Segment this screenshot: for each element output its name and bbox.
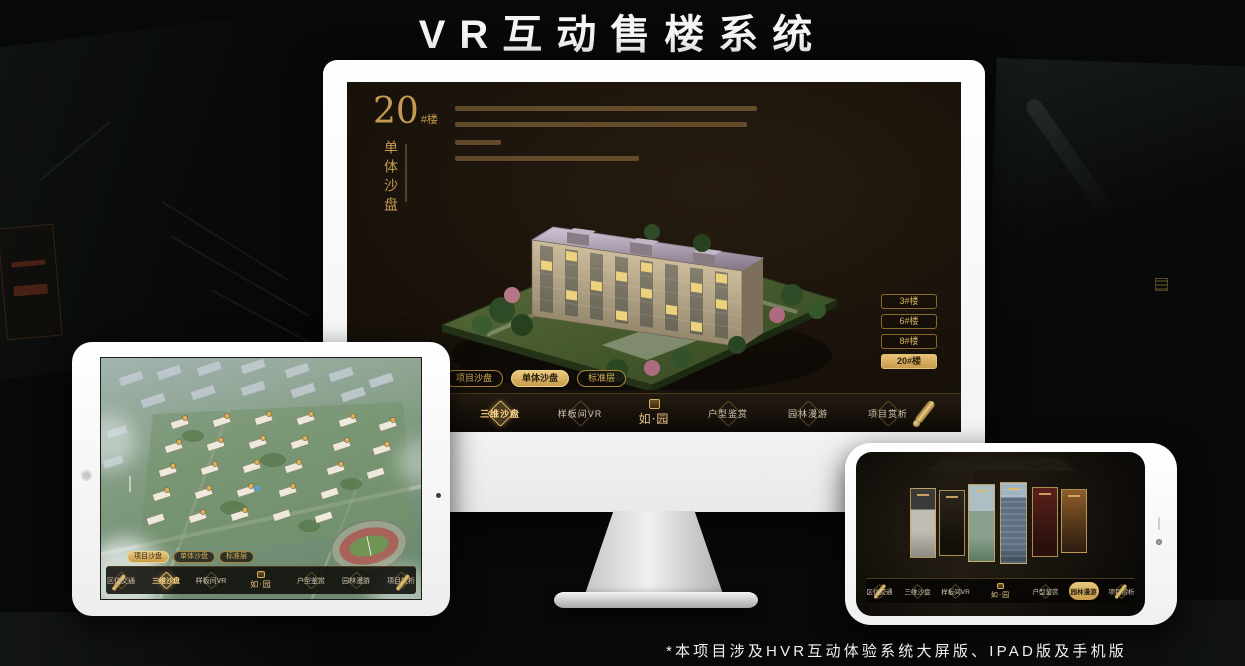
- nav-item-project-gallery[interactable]: 项目赏析: [860, 398, 916, 428]
- phone-speaker-icon: [1158, 517, 1160, 530]
- building-model-viewport[interactable]: [417, 140, 857, 390]
- page-title: VR互动售楼系统: [0, 2, 1245, 60]
- tab-standard-floor[interactable]: 标准层: [577, 370, 626, 387]
- background-road-line: [211, 289, 309, 342]
- phone-navbar: 区位交通 三维沙盘 样板间VR 如·园 户型鉴赏: [866, 578, 1135, 603]
- building-button-20[interactable]: 20#楼: [881, 354, 937, 369]
- tablet-navbar: 区位交通 三维沙盘 样板间VR 如·园 户型鉴赏: [106, 566, 416, 594]
- nav-item-3d-sandtable[interactable]: 三维沙盘: [903, 582, 933, 600]
- building-number: 20: [373, 91, 419, 132]
- building-number-suffix: #楼: [421, 114, 438, 126]
- tablet-subtabs: 项目沙盘 单体沙盘 标准层: [127, 551, 254, 563]
- nav-item-model-room-vr[interactable]: 样板间VR: [194, 570, 228, 592]
- building-selector: 3#楼 6#楼 8#楼 20#楼: [881, 294, 941, 374]
- scroll-handle-icon[interactable]: [1113, 583, 1130, 600]
- nav-item-garden-tour[interactable]: 园林漫游: [339, 570, 373, 592]
- brand-seal-icon: [997, 583, 1004, 589]
- nav-item-3d-sandtable[interactable]: 三维沙盘: [472, 398, 528, 428]
- nav-item-floorplan-view[interactable]: 户型鉴赏: [294, 570, 328, 592]
- nav-item-floorplan-view[interactable]: 户型鉴赏: [1031, 582, 1061, 600]
- heading-subtitle-vertical: 单体沙盘: [381, 140, 401, 216]
- tab-standard-floor[interactable]: 标准层: [219, 551, 254, 563]
- building-heading: 20#楼: [373, 94, 438, 130]
- background-river-shape: [1023, 96, 1116, 220]
- nav-item-location-traffic[interactable]: 区位交通: [865, 582, 895, 600]
- tablet-sensor-dot: [436, 493, 441, 498]
- building-button-3[interactable]: 3#楼: [881, 294, 937, 309]
- background-map-collage: [0, 7, 369, 383]
- nav-item-3d-sandtable[interactable]: 三维沙盘: [149, 570, 183, 592]
- heading-english-bar: [405, 144, 407, 202]
- tab-single-sandtable[interactable]: 单体沙盘: [511, 370, 569, 387]
- background-road-line: [40, 121, 110, 180]
- nav-item-garden-tour[interactable]: 园林漫游: [1069, 582, 1099, 600]
- intro-text-line: [455, 106, 757, 111]
- monitor-stand-neck: [584, 511, 724, 597]
- nav-item-floorplan-view[interactable]: 户型鉴赏: [700, 398, 756, 428]
- brand-seal-icon: [649, 399, 660, 409]
- phone-frame: 区位交通 三维沙盘 样板间VR 如·园 户型鉴赏: [845, 443, 1177, 625]
- scroll-handle-icon[interactable]: [394, 573, 413, 592]
- footnote: *本项目涉及HVR互动体验系统大屏版、IPAD版及手机版: [666, 640, 1127, 661]
- tablet-screen: 项目沙盘 单体沙盘 标准层 区位交通 三维沙盘 样板间VR: [100, 357, 422, 600]
- brand-seal-icon: [257, 571, 265, 578]
- tab-single-sandtable[interactable]: 单体沙盘: [173, 551, 215, 563]
- scroll-handle-icon[interactable]: [909, 398, 939, 428]
- background-plaque: [0, 224, 63, 340]
- phone-camera-icon: [1156, 539, 1162, 545]
- phone-screen: 区位交通 三维沙盘 样板间VR 如·园 户型鉴赏: [856, 452, 1145, 616]
- background-brand-mark: [1155, 278, 1168, 291]
- tablet-frame: 项目沙盘 单体沙盘 标准层 区位交通 三维沙盘 样板间VR: [72, 342, 450, 616]
- nav-item-location-traffic[interactable]: 区位交通: [104, 570, 138, 592]
- nav-item-model-room-vr[interactable]: 样板间VR: [941, 582, 971, 600]
- masterplan-sandtable-map[interactable]: [101, 358, 422, 600]
- sandtable-subtabs: 项目沙盘 单体沙盘 标准层: [445, 370, 626, 387]
- background-shard: [0, 612, 330, 666]
- tab-project-sandtable[interactable]: 项目沙盘: [445, 370, 503, 387]
- nav-item-model-room-vr[interactable]: 样板间VR: [552, 398, 608, 428]
- background-photo-collage: [988, 58, 1245, 327]
- building-button-8[interactable]: 8#楼: [881, 334, 937, 349]
- building-button-6[interactable]: 6#楼: [881, 314, 937, 329]
- brand-logo: 如·园: [632, 399, 676, 427]
- promo-canvas: VR互动售楼系统 20#楼 单体沙盘: [0, 0, 1245, 666]
- tab-project-sandtable[interactable]: 项目沙盘: [127, 551, 169, 563]
- monitor-stand-base: [554, 592, 758, 608]
- tablet-camera-icon: [81, 470, 92, 481]
- brand-logo: 如·园: [239, 571, 283, 590]
- intro-text-line: [455, 122, 747, 127]
- nav-item-garden-tour[interactable]: 园林漫游: [780, 398, 836, 428]
- brand-logo: 如·园: [979, 583, 1023, 600]
